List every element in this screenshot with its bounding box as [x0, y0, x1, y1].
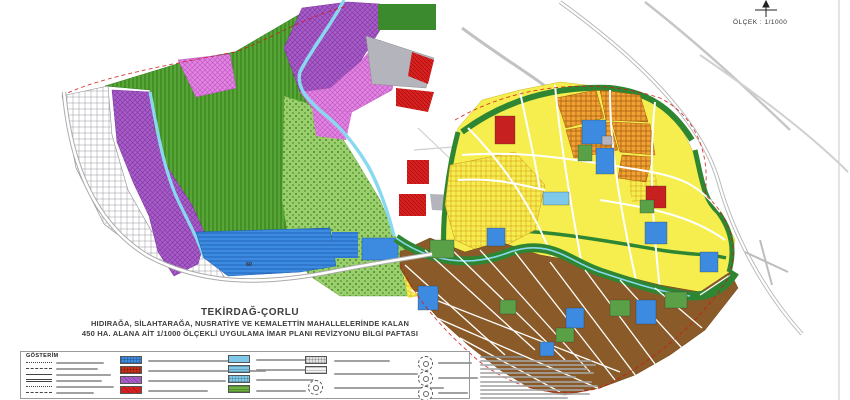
swatch-gray-crosshatch — [305, 356, 327, 364]
legend-symbol-circle-0 — [308, 380, 323, 395]
legend-swatches-col4 — [305, 356, 327, 374]
legend-header: GÖSTERİM — [26, 353, 59, 359]
title-districts: HIDIRAĞA, SİLAHTARAĞA, NUSRATİYE VE KEMA… — [40, 319, 460, 329]
legend-swatches-col3 — [228, 355, 250, 393]
swatch-lightblue-2 — [228, 365, 250, 373]
swatch-blue-hatched — [120, 356, 142, 364]
zone-red-c — [407, 160, 429, 184]
swatch-purple — [120, 376, 142, 384]
swatch-lightblue-1 — [228, 355, 250, 363]
zone-green-patch-north — [378, 4, 436, 30]
swatch-darkred-hatched — [120, 366, 142, 374]
title-plan-description: 450 HA. ALANA AİT 1/1000 ÖLÇEKLİ UYGULAM… — [40, 329, 460, 339]
north-arrow-icon — [755, 1, 777, 17]
zoning-map-canvas — [0, 0, 850, 400]
title-city: TEKİRDAĞ-ÇORLU — [40, 307, 460, 319]
zoning-plan-sheet: 60 ÖLÇEK : 1/1000 TEKİRDAĞ-ÇORLU HIDIRAĞ… — [0, 0, 850, 400]
zone-blue-small-1 — [332, 232, 358, 258]
road-marker-60: 60 — [246, 262, 252, 268]
swatch-lightblue-3 — [228, 375, 250, 383]
zone-red-b — [396, 88, 434, 112]
swatch-gray-lines — [305, 366, 327, 374]
scale-label: ÖLÇEK : 1/1000 — [733, 19, 843, 26]
zone-blue-small-2 — [362, 238, 398, 260]
swatch-red — [120, 386, 142, 394]
swatch-green — [228, 385, 250, 393]
map-title-block: TEKİRDAĞ-ÇORLU HIDIRAĞA, SİLAHTARAĞA, NU… — [40, 307, 460, 339]
zone-red-d — [399, 194, 426, 216]
legend-swatches-col2 — [120, 356, 142, 394]
